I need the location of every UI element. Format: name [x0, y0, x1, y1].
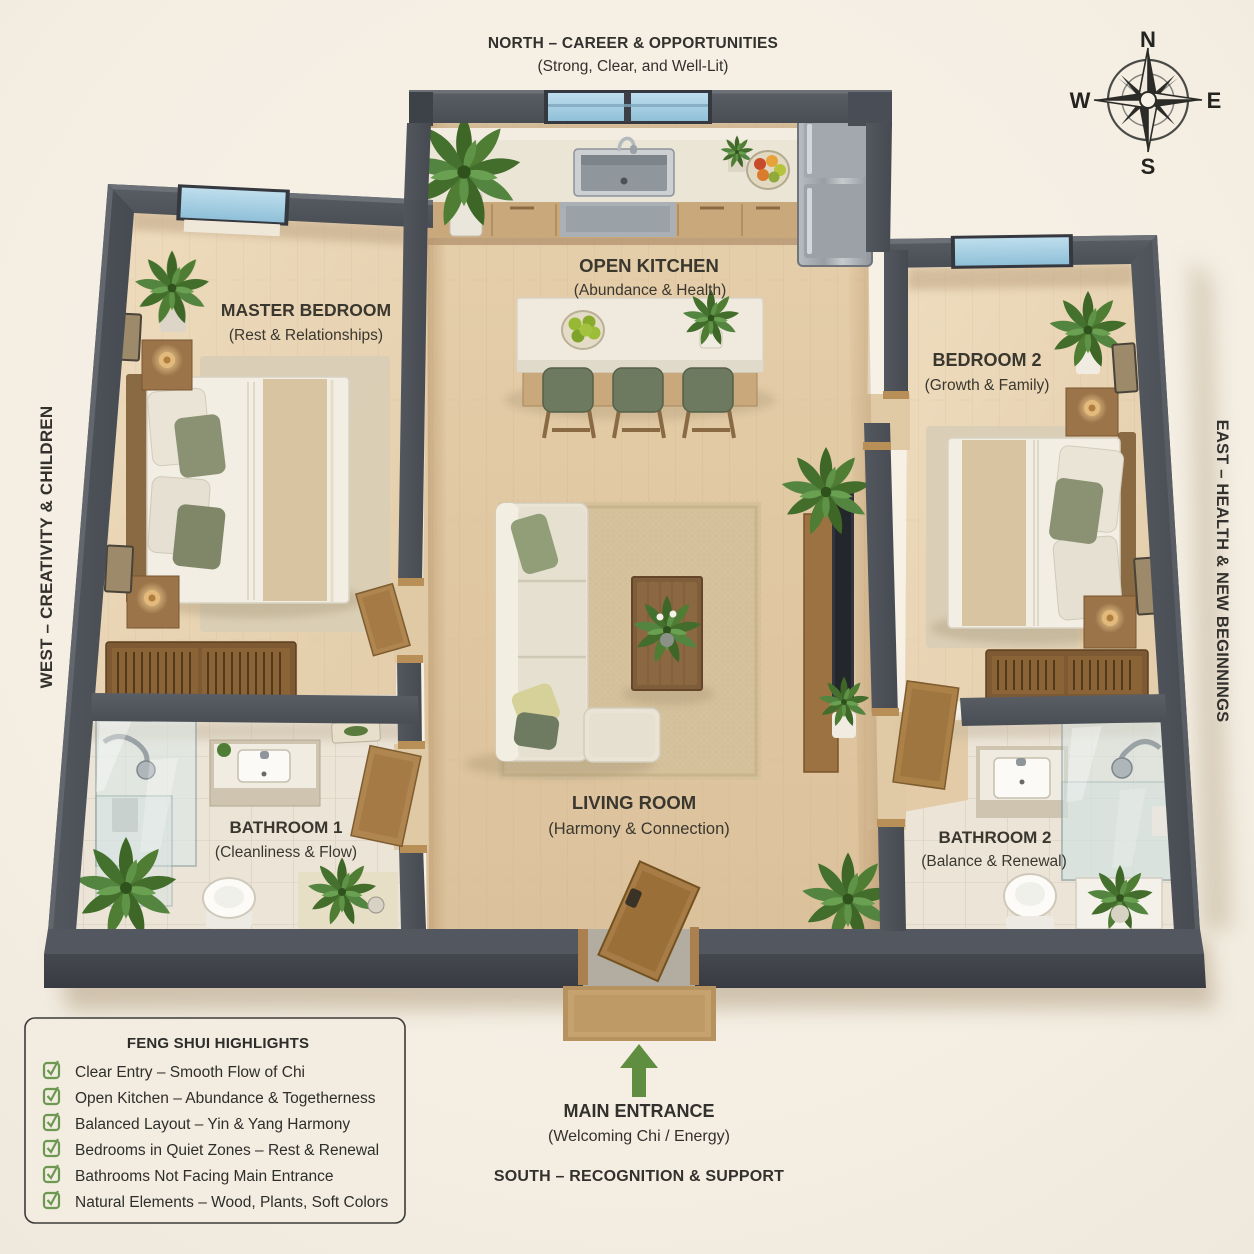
svg-text:BATHROOM 1: BATHROOM 1 — [229, 818, 342, 837]
svg-text:Bedrooms in Quiet Zones – Rest: Bedrooms in Quiet Zones – Rest & Renewal — [75, 1142, 379, 1159]
svg-text:W: W — [1070, 88, 1091, 113]
svg-text:MAIN ENTRANCE: MAIN ENTRANCE — [564, 1101, 715, 1121]
svg-text:(Cleanliness & Flow): (Cleanliness & Flow) — [215, 844, 357, 861]
svg-text:LIVING ROOM: LIVING ROOM — [572, 792, 696, 813]
svg-text:(Welcoming Chi / Energy): (Welcoming Chi / Energy) — [548, 1128, 730, 1145]
svg-text:BATHROOM 2: BATHROOM 2 — [938, 828, 1051, 847]
svg-text:E: E — [1207, 88, 1222, 113]
svg-text:Clear Entry – Smooth Flow of C: Clear Entry – Smooth Flow of Chi — [75, 1064, 305, 1081]
svg-text:(Rest & Relationships): (Rest & Relationships) — [229, 327, 383, 344]
svg-text:(Growth & Family): (Growth & Family) — [925, 377, 1050, 394]
svg-text:NORTH – CAREER & OPPORTUNITIES: NORTH – CAREER & OPPORTUNITIES — [488, 35, 778, 52]
svg-text:Bathrooms Not Facing Main Entr: Bathrooms Not Facing Main Entrance — [75, 1168, 333, 1185]
svg-text:EAST – HEALTH & NEW BEGINNINGS: EAST – HEALTH & NEW BEGINNINGS — [1213, 420, 1231, 723]
svg-text:SOUTH – RECOGNITION & SUPPORT: SOUTH – RECOGNITION & SUPPORT — [494, 1168, 784, 1185]
svg-text:(Strong, Clear, and Well-Lit): (Strong, Clear, and Well-Lit) — [538, 58, 729, 75]
svg-text:N: N — [1140, 27, 1156, 52]
svg-text:BEDROOM 2: BEDROOM 2 — [932, 350, 1041, 370]
svg-text:S: S — [1141, 154, 1156, 179]
svg-text:MASTER BEDROOM: MASTER BEDROOM — [221, 300, 391, 320]
svg-text:(Harmony & Connection): (Harmony & Connection) — [548, 820, 730, 838]
svg-text:Balanced Layout – Yin & Yang H: Balanced Layout – Yin & Yang Harmony — [75, 1116, 350, 1133]
svg-text:OPEN KITCHEN: OPEN KITCHEN — [579, 255, 719, 276]
svg-text:(Balance & Renewal): (Balance & Renewal) — [921, 853, 1067, 870]
svg-text:WEST – CREATIVITY & CHILDREN: WEST – CREATIVITY & CHILDREN — [37, 406, 56, 689]
svg-text:Natural Elements – Wood, Plant: Natural Elements – Wood, Plants, Soft Co… — [75, 1194, 389, 1211]
svg-text:FENG SHUI HIGHLIGHTS: FENG SHUI HIGHLIGHTS — [127, 1035, 309, 1052]
svg-text:Open Kitchen – Abundance & Tog: Open Kitchen – Abundance & Togetherness — [75, 1090, 376, 1107]
svg-text:(Abundance & Health): (Abundance & Health) — [574, 282, 727, 299]
